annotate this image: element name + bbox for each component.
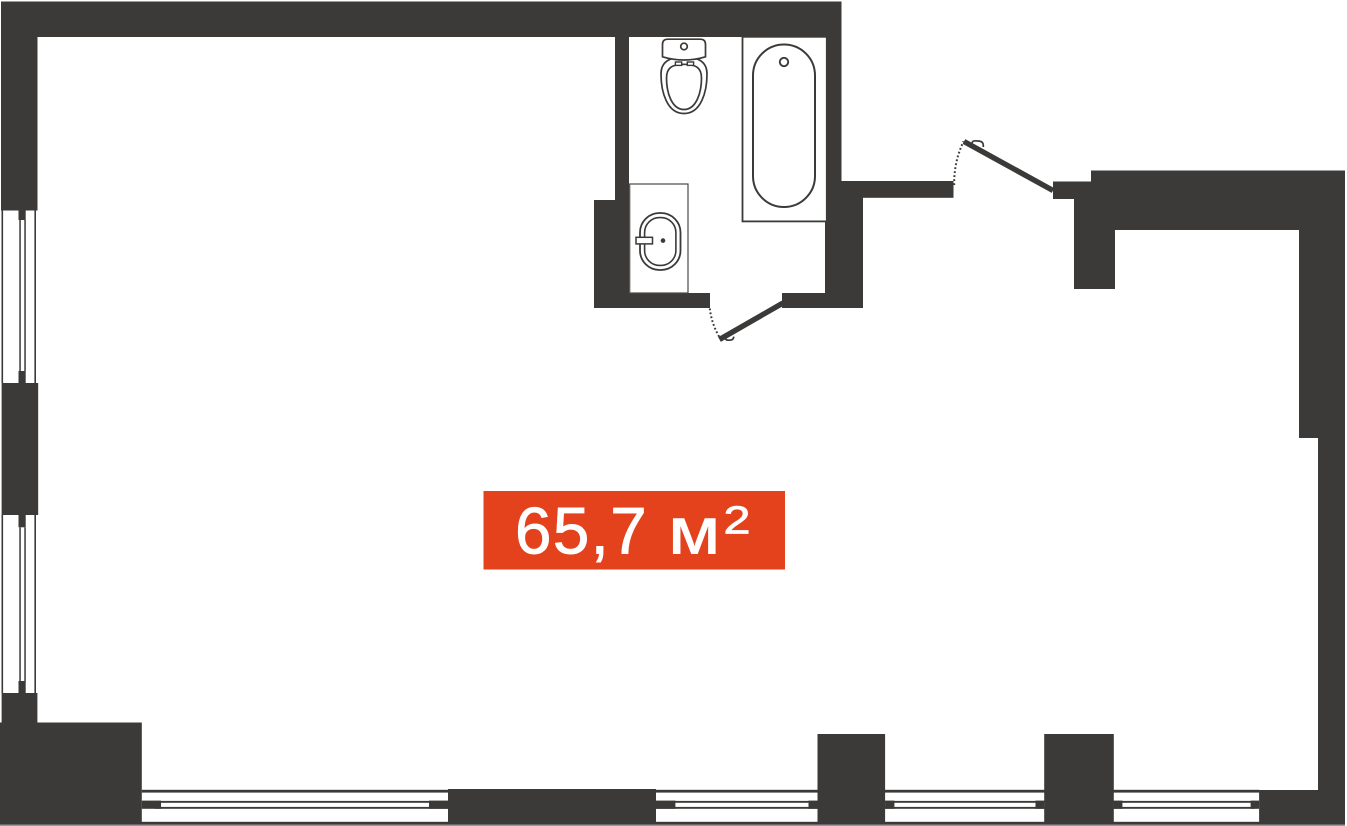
svg-text:65,7: 65,7 xyxy=(515,495,648,568)
svg-text:2: 2 xyxy=(724,500,751,543)
svg-text:м: м xyxy=(668,495,720,568)
